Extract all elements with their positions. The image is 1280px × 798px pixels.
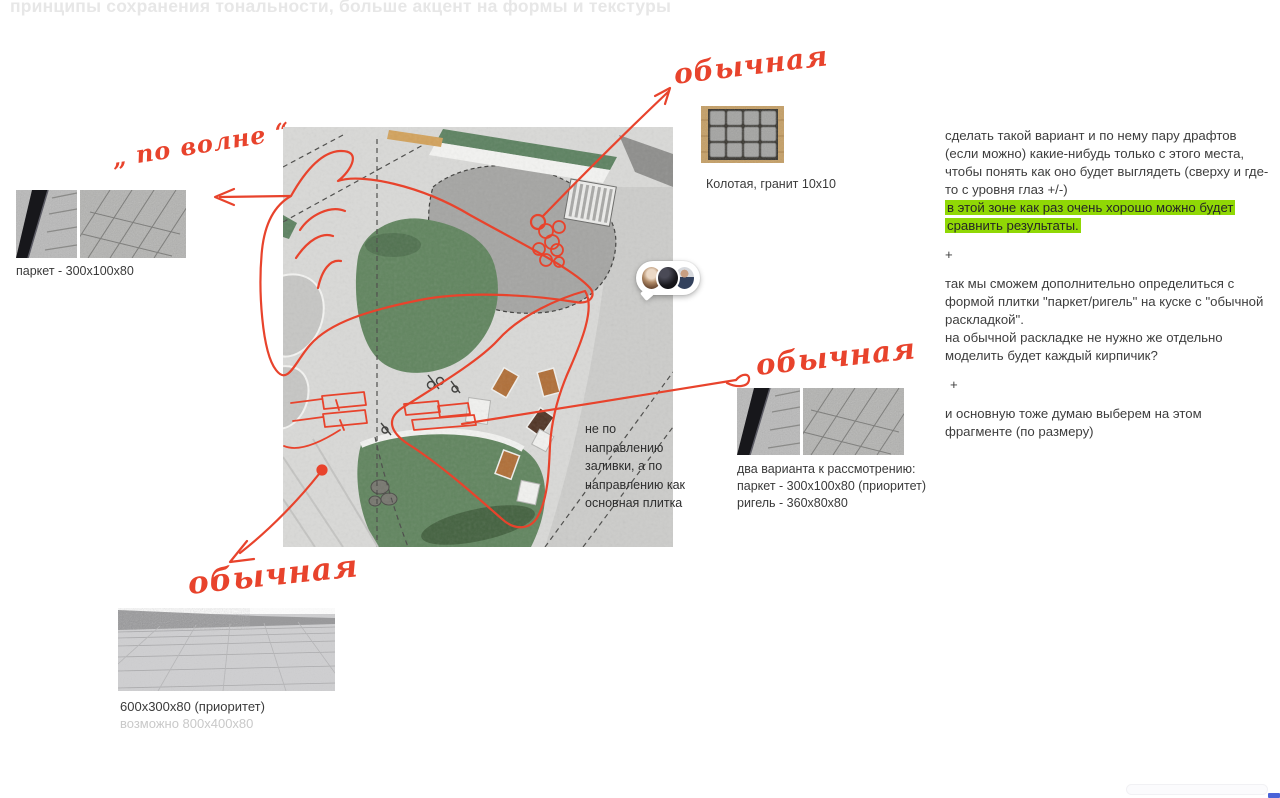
- highlighted-text: в этой зоне как раз очень хорошо можно б…: [945, 200, 1235, 233]
- bottom-size-primary-label[interactable]: 600x300x80 (приоритет): [120, 698, 265, 715]
- collaborator-avatars-pill[interactable]: [636, 261, 700, 295]
- variants-line-1: два варианта к рассмотрению:: [737, 461, 926, 478]
- variants-line-2: паркет - 300x100x80 (приоритет): [737, 478, 926, 495]
- kolotaya-label[interactable]: Колотая, гранит 10х10: [706, 176, 836, 193]
- handwritten-po-volne[interactable]: „ по волне “: [110, 116, 293, 173]
- variant-rigel-photo[interactable]: [803, 388, 904, 455]
- variant-parket-photo[interactable]: [737, 388, 800, 455]
- whiteboard-canvas: принципы сохранения тональности, больше …: [0, 0, 1280, 798]
- board-title[interactable]: принципы сохранения тональности, больше …: [10, 0, 730, 17]
- comment-highlight-wrap: в этой зоне как раз очень хорошо можно б…: [945, 199, 1269, 235]
- comment-paragraph-1: сделать такой вариант и по нему пару дра…: [945, 127, 1269, 199]
- comment-paragraph-2: так мы сможем дополнительно определиться…: [945, 275, 1269, 329]
- comment-plus-1: +: [945, 246, 1269, 264]
- kolotaya-granite-photo[interactable]: [701, 106, 784, 163]
- comment-paragraph-3: на обычной раскладке не нужно же отдельн…: [945, 329, 1269, 365]
- bottom-size-secondary-label[interactable]: возможно 800x400x80: [120, 715, 253, 732]
- comment-paragraph-4: и основную тоже думаю выберем на этом фр…: [945, 405, 1269, 441]
- parket-size-label[interactable]: паркет - 300x100x80: [16, 263, 134, 280]
- collaborator-avatar-2[interactable]: [656, 265, 679, 291]
- comment-plus-2: +: [945, 376, 1269, 394]
- parket-texture-photo[interactable]: [80, 190, 186, 258]
- parket-edge-photo[interactable]: [16, 190, 77, 258]
- remote-cursor-fragment: [1268, 793, 1280, 798]
- bottom-paving-photo[interactable]: [118, 608, 335, 691]
- handwritten-obychnaya-top[interactable]: обычная: [672, 39, 830, 91]
- horizontal-scrollbar[interactable]: [1126, 784, 1268, 795]
- comment-text-block[interactable]: сделать такой вариант и по нему пару дра…: [945, 127, 1269, 441]
- plan-direction-note[interactable]: не по направлению заливки, а по направле…: [585, 420, 687, 513]
- handwritten-obychnaya-bottom[interactable]: обычная: [186, 548, 360, 602]
- handwritten-obychnaya-mid[interactable]: обычная: [754, 331, 917, 382]
- variants-line-3: ригель - 360x80x80: [737, 495, 926, 512]
- variants-label-block[interactable]: два варианта к рассмотрению: паркет - 30…: [737, 461, 926, 512]
